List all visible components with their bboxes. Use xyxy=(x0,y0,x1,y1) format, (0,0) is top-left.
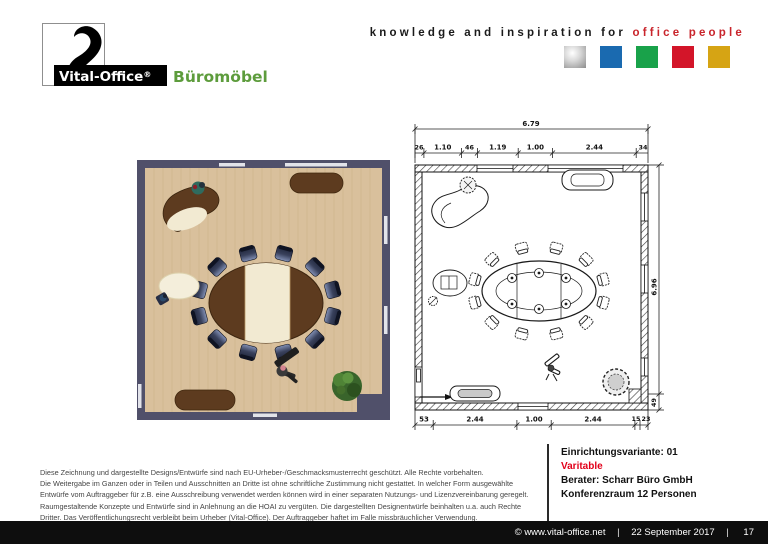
plan-sideboard-top xyxy=(562,170,613,190)
wall-notch xyxy=(357,394,382,412)
svg-text:1.10: 1.10 xyxy=(434,144,451,152)
plan-person xyxy=(544,353,560,381)
brand-color-squares xyxy=(564,46,730,68)
room-render-3d xyxy=(135,158,392,427)
project-info: Einrichtungsvariante: 01 Varitable Berat… xyxy=(561,446,697,502)
info-room: Konferenzraum 12 Personen xyxy=(561,488,697,502)
vital-office-logo: Vital-Office® Büromöbel xyxy=(42,23,287,96)
tagline-red: office people xyxy=(632,27,745,39)
svg-text:15: 15 xyxy=(632,415,641,423)
svg-text:49: 49 xyxy=(650,398,658,407)
info-consultant: Berater: Scharr Büro GmbH xyxy=(561,474,697,488)
plan-sideboard-bottom xyxy=(450,386,500,401)
bar-separator: | xyxy=(617,521,619,544)
disclaimer-line: Die Weitergabe im Ganzen oder in Teilen … xyxy=(40,478,550,489)
color-square-red xyxy=(672,46,694,68)
svg-text:1.00: 1.00 xyxy=(527,144,544,152)
svg-text:46: 46 xyxy=(465,144,474,152)
tagline: knowledge and inspiration for office peo… xyxy=(370,27,745,39)
plan-conference-table xyxy=(482,261,596,321)
svg-text:23: 23 xyxy=(642,415,651,423)
color-square-blue xyxy=(600,46,622,68)
svg-text:1.19: 1.19 xyxy=(489,144,506,152)
render-sideboard-top xyxy=(290,173,343,193)
render-sideboard-bottom xyxy=(175,390,235,410)
bar-page-number: 17 xyxy=(743,521,754,544)
bar-separator: | xyxy=(726,521,728,544)
svg-text:1.00: 1.00 xyxy=(525,416,542,424)
logo-brand-text: Vital-Office® xyxy=(59,69,151,85)
footer-divider xyxy=(547,444,549,521)
floor-plan-drawing: 6.79 26 1.10 46 1.19 1.00 2.44 34 xyxy=(405,115,668,465)
svg-text:53: 53 xyxy=(419,416,429,424)
plan-curved-desk xyxy=(432,177,488,228)
bar-website: © www.vital-office.net xyxy=(515,521,606,544)
info-series: Varitable xyxy=(561,460,697,474)
svg-text:2.44: 2.44 xyxy=(584,416,601,424)
svg-text:2.44: 2.44 xyxy=(466,416,483,424)
plan-plant xyxy=(603,369,629,395)
bottom-bar: © www.vital-office.net | 22 September 20… xyxy=(0,521,768,544)
plan-door xyxy=(415,367,453,400)
disclaimer-line: Diese Zeichnung und dargestellte Designs… xyxy=(40,467,550,478)
tagline-black: knowledge and inspiration for xyxy=(370,27,626,39)
svg-text:26: 26 xyxy=(415,144,424,152)
color-square-gold xyxy=(708,46,730,68)
logo-suffix-text: Büromöbel xyxy=(173,68,268,86)
color-square-silver xyxy=(564,46,586,68)
disclaimer-line: Entwürfe vom Auftraggeber für z.B. eine … xyxy=(40,489,550,500)
svg-text:34: 34 xyxy=(639,144,648,152)
render-plant xyxy=(332,371,362,401)
disclaimer-line: Raumgestaltende Konzepte und Entwürfe si… xyxy=(40,501,550,512)
plan-round-table xyxy=(429,270,468,306)
color-square-green xyxy=(636,46,658,68)
bar-date: 22 September 2017 xyxy=(631,521,714,544)
svg-text:2.44: 2.44 xyxy=(586,144,603,152)
legal-disclaimer: Diese Zeichnung und dargestellte Designs… xyxy=(40,467,550,523)
dim-total-height: 6.96 xyxy=(651,278,659,295)
dim-total-width: 6.79 xyxy=(522,120,539,128)
info-variant: Einrichtungsvariante: 01 xyxy=(561,446,697,460)
